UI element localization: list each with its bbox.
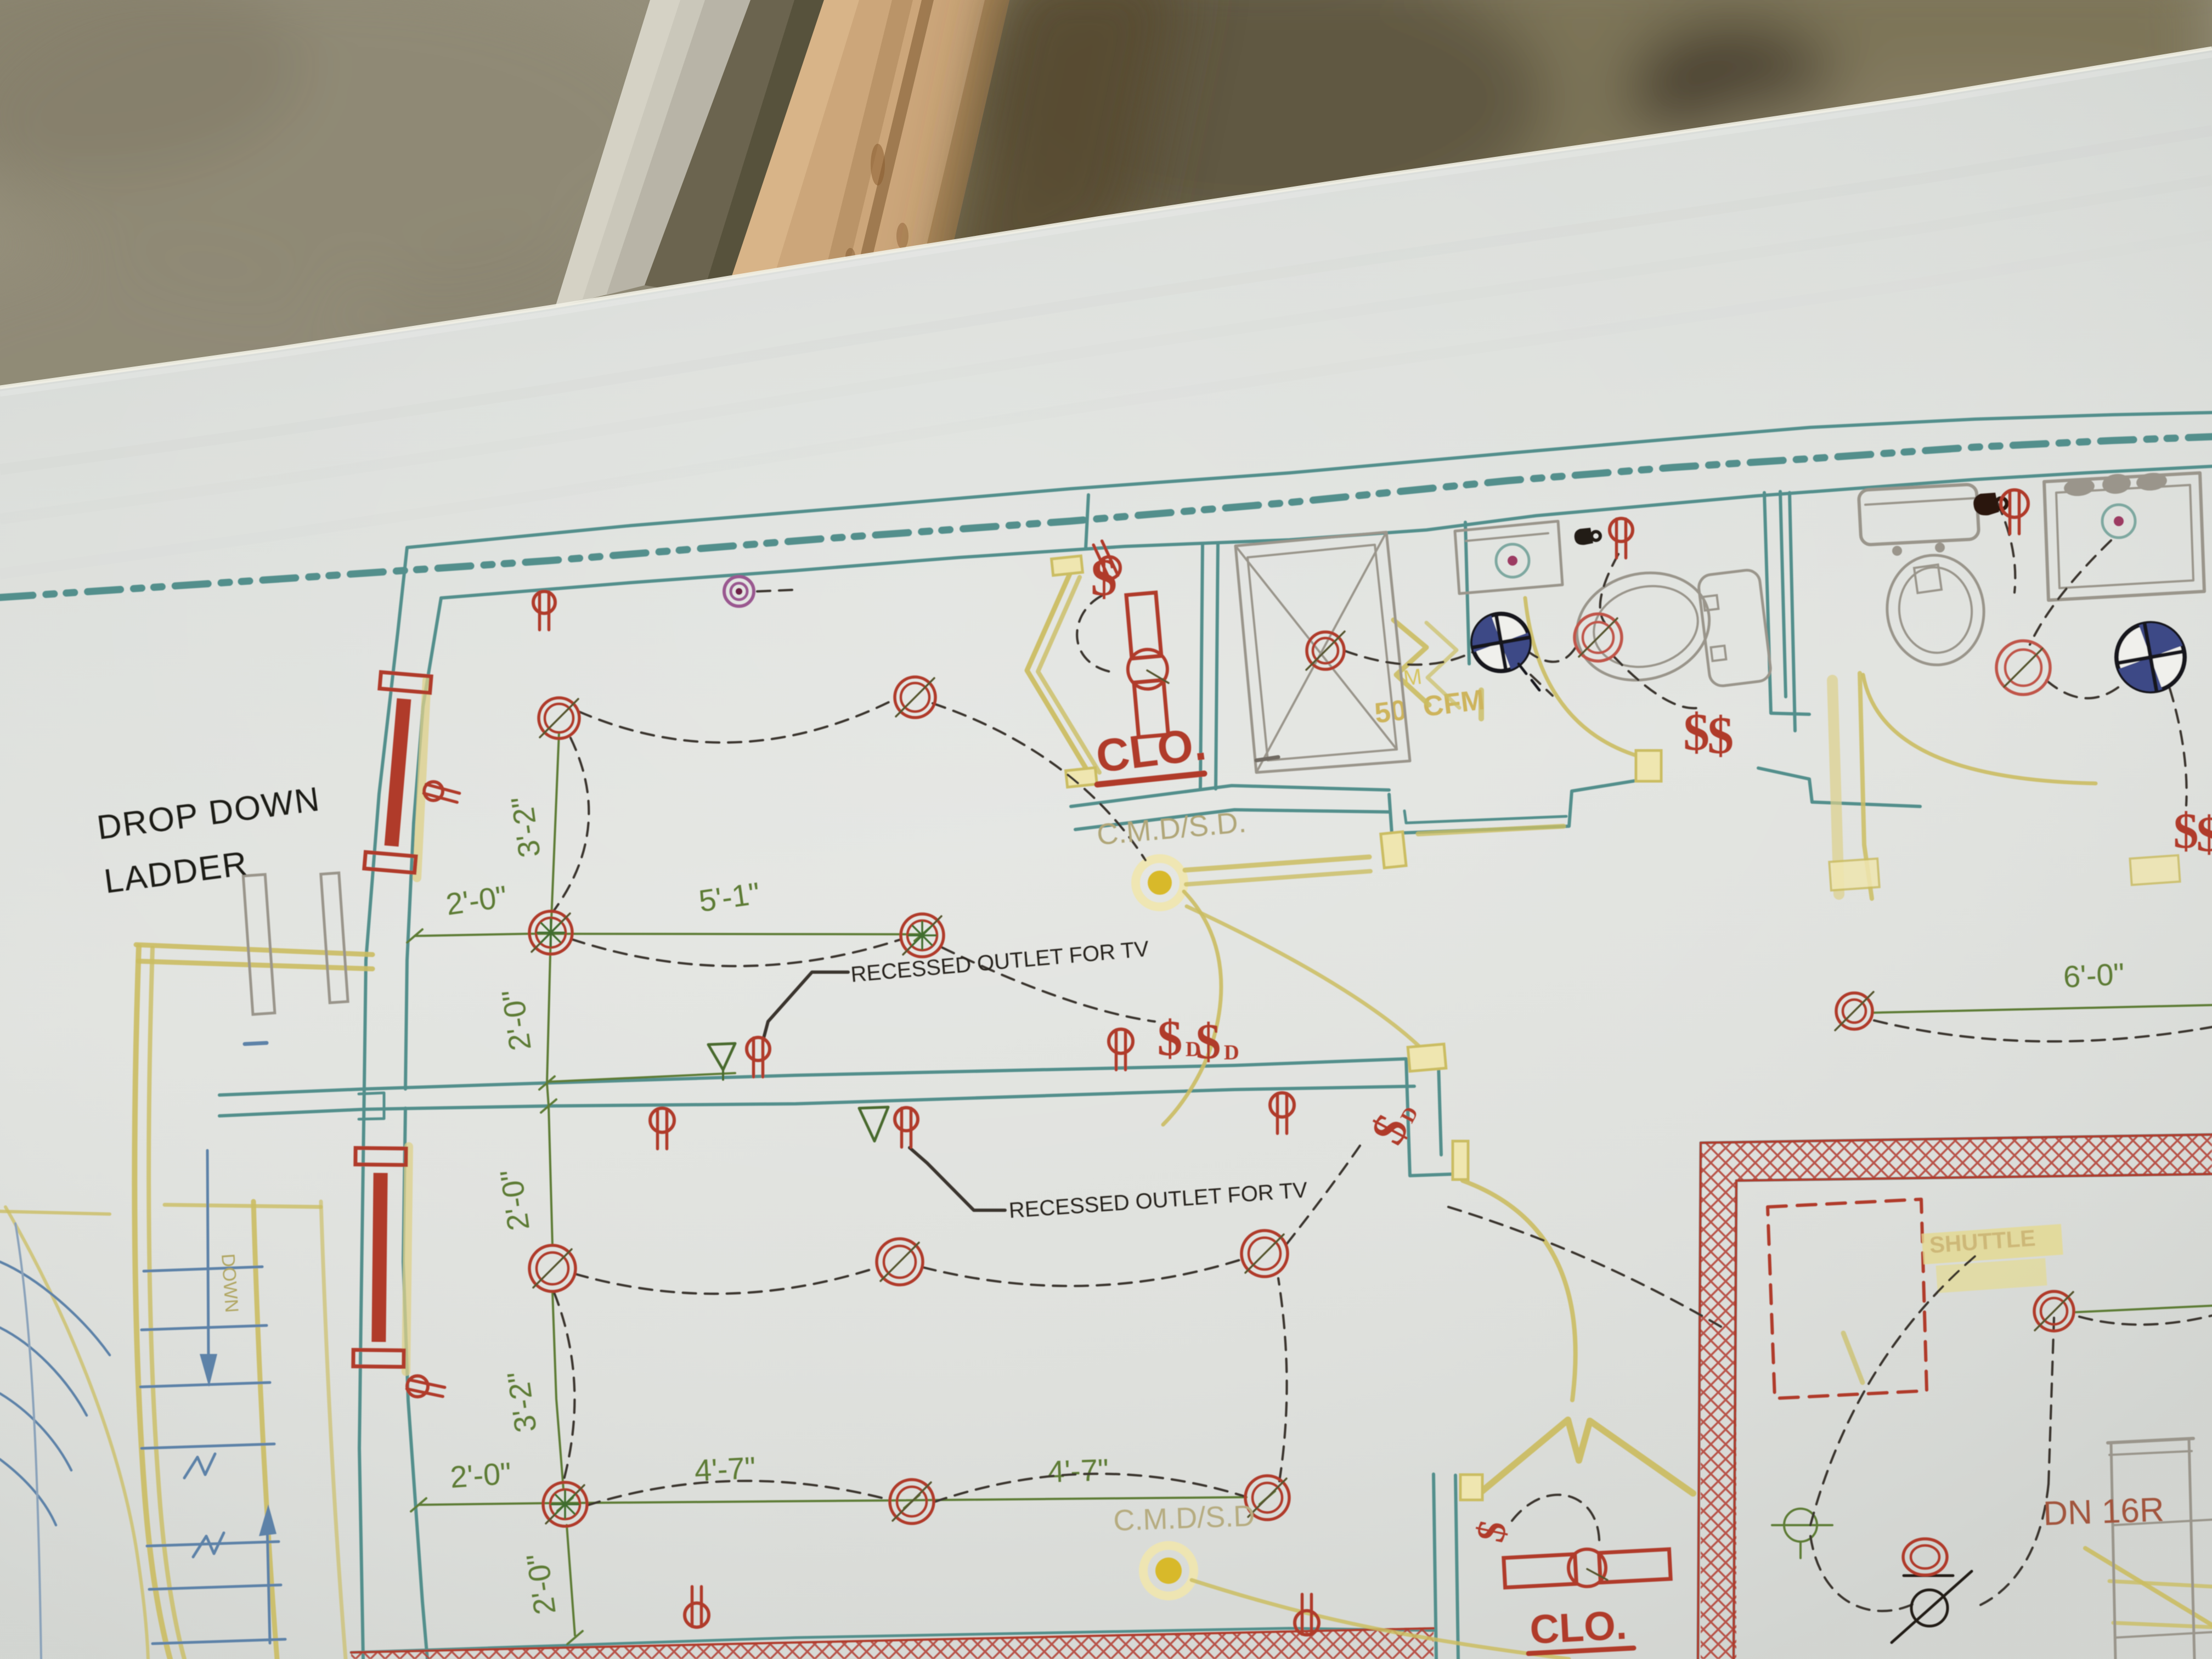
svg-text:DOWN: DOWN bbox=[217, 1253, 242, 1313]
svg-text:2'-0": 2'-0" bbox=[449, 1455, 512, 1494]
svg-text:$: $ bbox=[1195, 1013, 1221, 1069]
svg-text:$: $ bbox=[2196, 806, 2212, 862]
svg-text:$: $ bbox=[1157, 1010, 1182, 1066]
svg-text:$: $ bbox=[1683, 702, 1709, 761]
svg-text:4'-7": 4'-7" bbox=[1047, 1452, 1109, 1489]
svg-text:M: M bbox=[1402, 664, 1423, 691]
svg-text:$: $ bbox=[2173, 803, 2198, 859]
svg-text:C.M.D/S.D: C.M.D/S.D bbox=[1113, 1499, 1255, 1537]
svg-text:6'-0": 6'-0" bbox=[2062, 956, 2125, 994]
svg-text:$: $ bbox=[1707, 706, 1734, 764]
svg-text:DN 16R: DN 16R bbox=[2042, 1491, 2165, 1533]
svg-text:D: D bbox=[1224, 1041, 1239, 1064]
svg-text:CLO.: CLO. bbox=[1528, 1602, 1628, 1652]
svg-text:$: $ bbox=[1091, 548, 1117, 606]
